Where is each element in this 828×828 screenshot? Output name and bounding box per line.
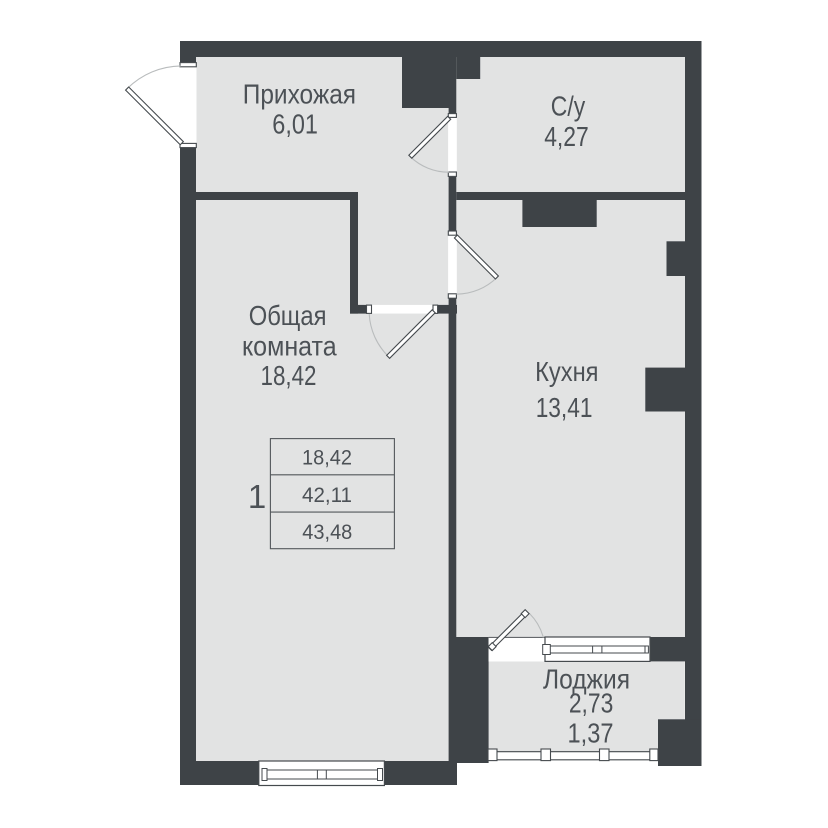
svg-text:Общая: Общая <box>249 300 327 331</box>
svg-text:Кухня: Кухня <box>535 356 598 387</box>
svg-text:42,11: 42,11 <box>302 483 352 507</box>
svg-text:18,42: 18,42 <box>261 360 317 391</box>
svg-text:комната: комната <box>242 330 337 361</box>
svg-text:13,41: 13,41 <box>536 392 593 423</box>
svg-text:2,73: 2,73 <box>569 688 614 719</box>
svg-text:18,42: 18,42 <box>302 446 352 470</box>
svg-text:1: 1 <box>248 478 266 515</box>
svg-text:6,01: 6,01 <box>272 108 318 139</box>
svg-text:Прихожая: Прихожая <box>243 79 356 110</box>
svg-text:4,27: 4,27 <box>544 121 589 152</box>
svg-text:43,48: 43,48 <box>302 520 352 544</box>
svg-text:С/у: С/у <box>551 91 585 122</box>
svg-text:1,37: 1,37 <box>568 717 614 748</box>
